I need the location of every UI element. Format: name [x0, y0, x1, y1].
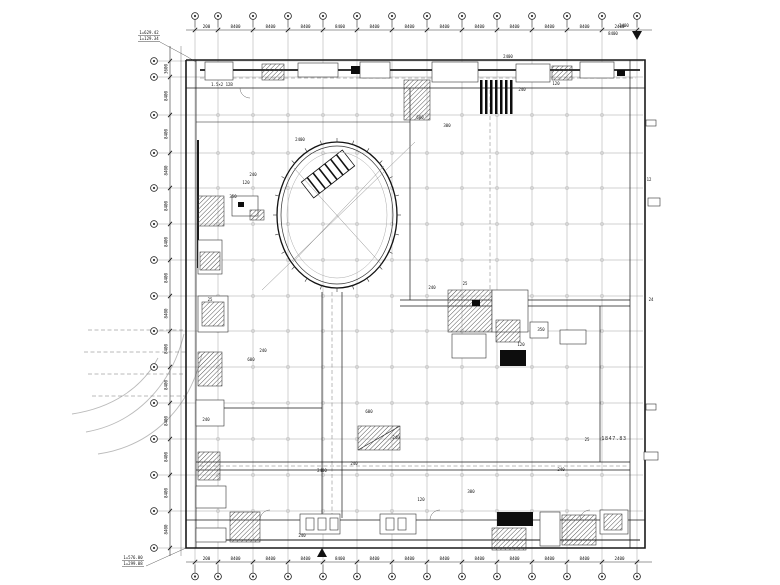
svg-text:8400: 8400: [230, 24, 241, 29]
svg-text:8400: 8400: [265, 556, 276, 561]
svg-text:8400: 8400: [300, 24, 311, 29]
svg-text:8400: 8400: [164, 236, 169, 247]
svg-text:8400: 8400: [579, 24, 590, 29]
svg-text:8400: 8400: [164, 272, 169, 283]
svg-text:2400: 2400: [503, 54, 513, 59]
svg-text:240: 240: [202, 417, 210, 422]
svg-text:8400: 8400: [439, 556, 450, 561]
svg-text:2400: 2400: [295, 137, 305, 142]
svg-text:8400: 8400: [474, 24, 485, 29]
svg-text:120: 120: [242, 180, 250, 185]
grid-layer: [158, 20, 643, 573]
svg-text:25: 25: [208, 297, 213, 302]
svg-text:8400: 8400: [164, 165, 169, 176]
svg-text:8400: 8400: [164, 343, 169, 354]
svg-text:8400: 8400: [335, 556, 346, 561]
note-top-left-line2: 1=129.34: [139, 36, 159, 41]
svg-text:1.5×2 12B: 1.5×2 12B: [211, 82, 233, 87]
svg-text:8400: 8400: [369, 24, 380, 29]
svg-text:24: 24: [649, 297, 654, 302]
svg-text:8400: 8400: [164, 451, 169, 462]
svg-text:8400: 8400: [265, 24, 276, 29]
svg-text:8400: 8400: [608, 31, 618, 36]
svg-text:8400: 8400: [164, 128, 169, 139]
svg-text:240: 240: [298, 533, 306, 538]
svg-text:25: 25: [585, 437, 590, 442]
svg-text:8400: 8400: [579, 556, 590, 561]
svg-text:350: 350: [537, 327, 545, 332]
svg-text:200: 200: [203, 24, 211, 29]
svg-text:12: 12: [647, 177, 652, 182]
svg-text:240: 240: [249, 172, 257, 177]
svg-text:300: 300: [467, 489, 475, 494]
site-curves-layer: [72, 42, 636, 566]
svg-text:8400: 8400: [164, 308, 169, 319]
svg-text:8400: 8400: [335, 24, 346, 29]
svg-text:8400: 8400: [164, 200, 169, 211]
svg-text:300: 300: [443, 123, 451, 128]
svg-text:120: 120: [517, 342, 525, 347]
area-label: 1847.83: [601, 436, 626, 442]
svg-text:2400: 2400: [614, 556, 625, 561]
svg-text:350: 350: [229, 194, 237, 199]
floor-plan-svg: 2008400840084008400840084008400840084008…: [0, 0, 780, 585]
svg-text:600: 600: [365, 409, 373, 414]
svg-text:240: 240: [428, 285, 436, 290]
svg-text:3600: 3600: [164, 63, 169, 74]
svg-text:25: 25: [463, 281, 468, 286]
svg-text:8400: 8400: [300, 556, 311, 561]
svg-text:240: 240: [350, 461, 358, 466]
svg-text:8400: 8400: [164, 379, 169, 390]
svg-text:8400: 8400: [404, 24, 415, 29]
svg-text:8400: 8400: [509, 556, 520, 561]
svg-text:8400: 8400: [439, 24, 450, 29]
svg-text:8400: 8400: [164, 487, 169, 498]
svg-text:240: 240: [557, 467, 565, 472]
note-bottom-left-line1: 1=576.00: [123, 555, 143, 560]
svg-text:8400: 8400: [230, 556, 241, 561]
svg-text:600: 600: [416, 115, 424, 120]
note-top-left-line1: 1=629.42: [139, 30, 159, 35]
svg-text:8400: 8400: [474, 556, 485, 561]
svg-text:8400: 8400: [544, 556, 555, 561]
svg-text:25: 25: [239, 202, 244, 207]
svg-text:8400: 8400: [164, 524, 169, 535]
cad-floor-plan: 2008400840084008400840084008400840084008…: [0, 0, 780, 585]
svg-text:240: 240: [259, 348, 267, 353]
svg-text:240: 240: [518, 87, 526, 92]
svg-text:600: 600: [247, 357, 255, 362]
svg-text:8400: 8400: [404, 556, 415, 561]
svg-text:2400: 2400: [619, 23, 629, 28]
note-bottom-left-line2: 1=299.08: [123, 561, 143, 566]
svg-text:8400: 8400: [164, 90, 169, 101]
svg-text:8400: 8400: [544, 24, 555, 29]
svg-text:240: 240: [392, 435, 400, 440]
svg-text:8400: 8400: [164, 415, 169, 426]
svg-text:200: 200: [203, 556, 211, 561]
svg-text:8400: 8400: [369, 556, 380, 561]
svg-text:120: 120: [552, 81, 560, 86]
svg-text:8400: 8400: [509, 24, 520, 29]
svg-text:2400: 2400: [317, 468, 327, 473]
svg-text:120: 120: [417, 497, 425, 502]
